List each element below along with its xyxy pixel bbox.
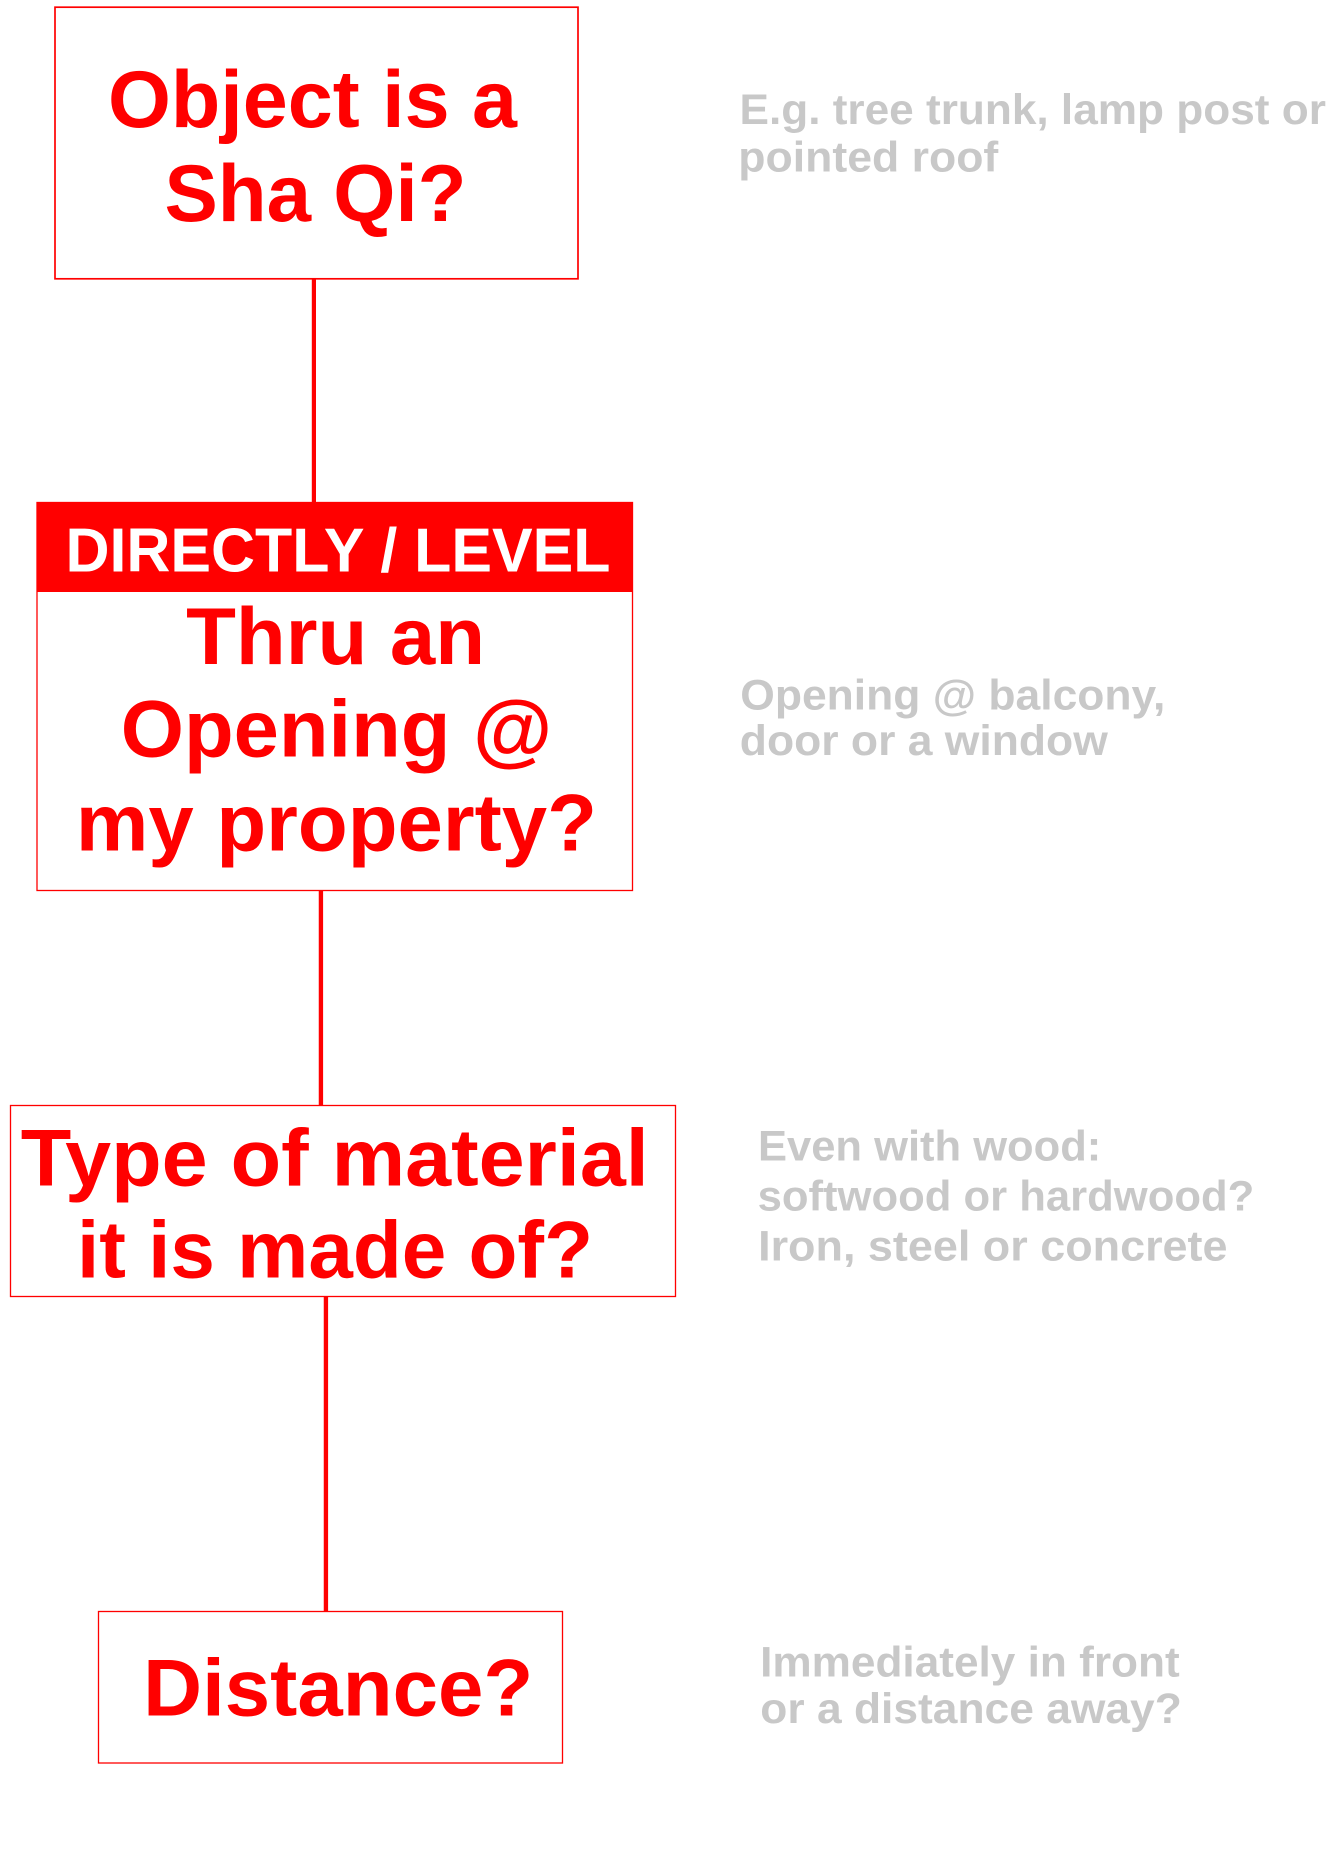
svg-text:Immediately in front: Immediately in front [760,1640,1180,1687]
svg-text:Sha Qi?: Sha Qi? [165,149,467,239]
svg-text:Object is a: Object is a [108,55,518,145]
svg-text:softwood or hardwood?: softwood or hardwood? [758,1173,1255,1220]
svg-text:pointed roof: pointed roof [738,135,999,182]
svg-text:Even with wood:: Even with wood: [758,1123,1101,1170]
svg-text:it is made of?: it is made of? [77,1206,593,1296]
svg-text:door or a window: door or a window [740,718,1109,765]
svg-text:or a distance away?: or a distance away? [760,1686,1182,1733]
svg-text:Opening @: Opening @ [121,685,553,775]
svg-text:DIRECTLY / LEVEL: DIRECTLY / LEVEL [66,516,611,585]
svg-text:Thru an: Thru an [186,592,485,682]
svg-text:Opening @ balcony,: Opening @ balcony, [740,673,1165,720]
svg-text:Iron, steel or concrete: Iron, steel or concrete [758,1224,1227,1271]
svg-text:E.g. tree trunk, lamp post or: E.g. tree trunk, lamp post or [740,87,1326,134]
svg-text:my property?: my property? [76,779,597,869]
svg-text:Distance?: Distance? [143,1644,533,1734]
svg-text:Type of material: Type of material [21,1114,649,1204]
